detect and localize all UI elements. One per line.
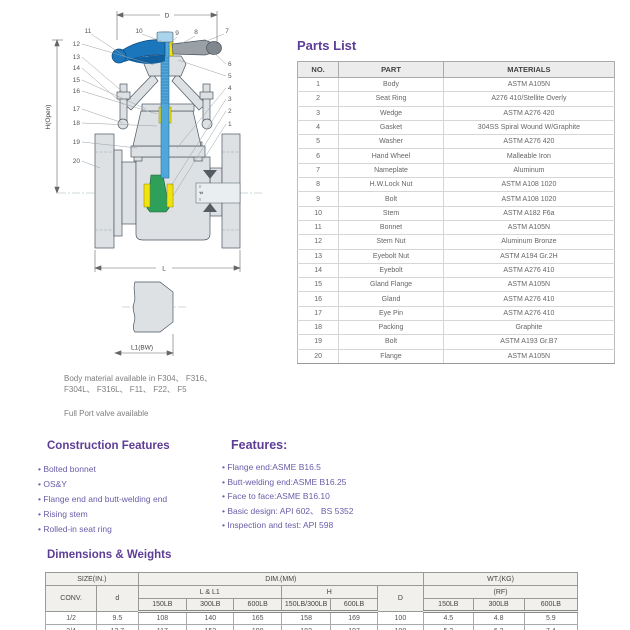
- col-header-no: NO.: [298, 62, 339, 78]
- dims-data-row: 3/4 12.7 117 152 190 183 197 100 5.3 6.3…: [46, 625, 578, 630]
- part-name-cell: Eye Pin: [339, 306, 444, 320]
- parts-list-section: Parts List NO. PART MATERIALS 1 Body AST…: [297, 38, 615, 364]
- part-name-cell: Packing: [339, 321, 444, 335]
- feature-item: Rising stem: [38, 507, 170, 522]
- callout: 1: [228, 121, 232, 128]
- header-dim: DIM.(MM): [138, 573, 423, 586]
- part-material-cell: ASTM A108 1020: [443, 178, 614, 192]
- feature-item: Bolted bonnet: [38, 462, 170, 477]
- sub-header: 600LB: [331, 599, 377, 612]
- feature-item: Basic design: API 602、 BS 5352: [222, 504, 354, 519]
- size-cell: 1/2: [46, 612, 97, 625]
- feature-item: Flange end:ASME B16.5: [222, 460, 354, 475]
- parts-table-row: 15 Gland Flange ASTM A105N: [298, 278, 615, 292]
- valve-cutaway-diagram: 11 10 9 8 7 12 13 14 15 16 17 18 19 20 6…: [0, 0, 300, 372]
- dim-h-label: H(Open): [45, 105, 52, 130]
- part-material-cell: ASTM A193 Gr.B7: [443, 335, 614, 349]
- part-material-cell: 304SS Spiral Wound W/Graphite: [443, 120, 614, 134]
- l600-cell: 165: [234, 612, 281, 625]
- part-name-cell: Nameplate: [339, 163, 444, 177]
- part-no-cell: 11: [298, 220, 339, 234]
- parts-table-row: 11 Bonnet ASTM A105N: [298, 220, 615, 234]
- diagram-notes: Body material available in F304、 F316、 F…: [64, 373, 296, 419]
- parts-table-row: 4 Gasket 304SS Spiral Wound W/Graphite: [298, 120, 615, 134]
- part-material-cell: ASTM A276 410: [443, 306, 614, 320]
- callout: 16: [73, 88, 81, 95]
- callout: 7: [225, 28, 229, 35]
- features-list: Flange end:ASME B16.5Butt-welding end:AS…: [222, 460, 354, 533]
- part-no-cell: 12: [298, 235, 339, 249]
- part-name-cell: Bonnet: [339, 220, 444, 234]
- feature-item: Inspection and test: API 598: [222, 518, 354, 533]
- parts-table-row: 5 Washer ASTM A276 420: [298, 135, 615, 149]
- D-cell: 100: [377, 625, 423, 630]
- part-name-cell: Gland Flange: [339, 278, 444, 292]
- parts-table-row: 7 Nameplate Aluminum: [298, 163, 615, 177]
- parts-table-row: 19 Bolt ASTM A193 Gr.B7: [298, 335, 615, 349]
- callout: 12: [73, 41, 81, 48]
- parts-table-row: 13 Eyebolt Nut ASTM A194 Gr.2H: [298, 249, 615, 263]
- part-name-cell: Eyebolt: [339, 263, 444, 277]
- sub-header: 600LB: [524, 599, 577, 612]
- parts-table-row: 14 Eyebolt ASTM A276 410: [298, 263, 615, 277]
- parts-list-title: Parts List: [297, 38, 615, 53]
- sub-header: 300LB: [187, 599, 234, 612]
- callout: 5: [228, 73, 232, 80]
- h150-300-cell: 183: [281, 625, 331, 630]
- sub-header: 150LB: [138, 599, 186, 612]
- part-no-cell: 5: [298, 135, 339, 149]
- feature-item: Rolled-in seat ring: [38, 522, 170, 537]
- parts-table-row: 10 Stem ASTM A182 F6a: [298, 206, 615, 220]
- feature-item: OS&Y: [38, 477, 170, 492]
- parts-table-row: 20 Flange ASTM A105N: [298, 349, 615, 363]
- parts-table-row: 18 Packing Graphite: [298, 321, 615, 335]
- header-rf: (RF): [424, 586, 578, 599]
- sub-header: 300LB: [473, 599, 524, 612]
- part-material-cell: ASTM A105N: [443, 278, 614, 292]
- part-no-cell: 14: [298, 263, 339, 277]
- callout: 10: [135, 28, 143, 35]
- feature-item: Flange end and butt-welding end: [38, 492, 170, 507]
- header-conv: CONV.: [46, 586, 97, 612]
- size-cell: 3/4: [46, 625, 97, 630]
- part-material-cell: Aluminum Bronze: [443, 235, 614, 249]
- l600-cell: 190: [234, 625, 281, 630]
- part-material-cell: ASTM A276 420: [443, 135, 614, 149]
- part-no-cell: 9: [298, 192, 339, 206]
- callout: 2: [228, 108, 232, 115]
- col-header-materials: MATERIALS: [443, 62, 614, 78]
- part-no-cell: 17: [298, 306, 339, 320]
- callout: 11: [85, 28, 92, 35]
- part-no-cell: 15: [298, 278, 339, 292]
- dim-l-label: L: [162, 266, 166, 273]
- dimensions-title: Dimensions & Weights: [47, 549, 171, 561]
- wt600-cell: 5.9: [524, 612, 577, 625]
- header-wt: WT.(KG): [424, 573, 578, 586]
- part-material-cell: ASTM A276 410: [443, 263, 614, 277]
- part-no-cell: 18: [298, 321, 339, 335]
- parts-table-row: 16 Gland ASTM A276 410: [298, 292, 615, 306]
- part-name-cell: Eyebolt Nut: [339, 249, 444, 263]
- part-name-cell: Gland: [339, 292, 444, 306]
- body-material-note: Body material available in F304、 F316、 F…: [64, 373, 296, 395]
- callout: 6: [228, 61, 232, 68]
- part-no-cell: 16: [298, 292, 339, 306]
- dimensions-section: SIZE(IN.) DIM.(MM) WT.(KG) CONV. d L & L…: [45, 572, 578, 630]
- parts-header-row: NO. PART MATERIALS: [298, 62, 615, 78]
- feature-item: Face to face:ASME B16.10: [222, 489, 354, 504]
- butt-weld-end: [133, 282, 173, 332]
- wt150-cell: 5.3: [424, 625, 474, 630]
- part-no-cell: 1: [298, 78, 339, 92]
- part-name-cell: Bolt: [339, 335, 444, 349]
- features-title: Features:: [231, 438, 354, 452]
- parts-table-row: 8 H.W.Lock Nut ASTM A108 1020: [298, 178, 615, 192]
- callout: 19: [73, 139, 81, 146]
- part-no-cell: 8: [298, 178, 339, 192]
- part-name-cell: Stem Nut: [339, 235, 444, 249]
- part-material-cell: Graphite: [443, 321, 614, 335]
- dims-header-row-1: SIZE(IN.) DIM.(MM) WT.(KG): [46, 573, 578, 586]
- part-material-cell: ASTM A276 410: [443, 292, 614, 306]
- sub-header: 150LB: [424, 599, 474, 612]
- header-l-l1: L & L1: [138, 586, 281, 599]
- construction-features-title: Construction Features: [47, 440, 170, 452]
- l300-cell: 140: [187, 612, 234, 625]
- feature-item: Butt-welding end:ASME B16.25: [222, 475, 354, 490]
- callout: 20: [73, 158, 81, 165]
- l300-cell: 152: [187, 625, 234, 630]
- callout: 13: [73, 54, 81, 61]
- D-cell: 100: [377, 612, 423, 625]
- h600-cell: 169: [331, 612, 377, 625]
- col-header-part: PART: [339, 62, 444, 78]
- part-name-cell: Body: [339, 78, 444, 92]
- l150-cell: 108: [138, 612, 186, 625]
- parts-table-row: 9 Bolt ASTM A108 1020: [298, 192, 615, 206]
- parts-table-row: 6 Hand Wheel Malleable Iron: [298, 149, 615, 163]
- note-line: F304L、 F316L、 F11、 F22、 F5: [64, 385, 187, 394]
- d-cell: 12.7: [97, 625, 139, 630]
- part-name-cell: Gasket: [339, 120, 444, 134]
- part-no-cell: 20: [298, 349, 339, 363]
- part-material-cell: ASTM A108 1020: [443, 192, 614, 206]
- part-material-cell: ASTM A194 Gr.2H: [443, 249, 614, 263]
- callout: 8: [194, 29, 198, 36]
- wt150-cell: 4.5: [424, 612, 474, 625]
- part-material-cell: ASTM A105N: [443, 349, 614, 363]
- callout: 9: [175, 30, 179, 37]
- callout: 3: [228, 96, 232, 103]
- part-no-cell: 2: [298, 92, 339, 106]
- dim-bore-label: d: [199, 191, 205, 194]
- part-material-cell: A276 410/Stellite Overly: [443, 92, 614, 106]
- part-name-cell: Seat Ring: [339, 92, 444, 106]
- header-h: H: [281, 586, 377, 599]
- parts-table-row: 2 Seat Ring A276 410/Stellite Overly: [298, 92, 615, 106]
- wt300-cell: 4.8: [473, 612, 524, 625]
- d-cell: 9.5: [97, 612, 139, 625]
- callout: 18: [73, 120, 81, 127]
- part-name-cell: Wedge: [339, 106, 444, 120]
- dims-data-row: 1/2 9.5 108 140 165 158 169 100 4.5 4.8 …: [46, 612, 578, 625]
- part-name-cell: Stem: [339, 206, 444, 220]
- part-no-cell: 7: [298, 163, 339, 177]
- part-no-cell: 10: [298, 206, 339, 220]
- construction-features-list: Bolted bonnetOS&YFlange end and butt-wel…: [38, 462, 170, 537]
- parts-table-row: 3 Wedge ASTM A276 420: [298, 106, 615, 120]
- l150-cell: 117: [138, 625, 186, 630]
- part-name-cell: Washer: [339, 135, 444, 149]
- callout: 15: [73, 77, 81, 84]
- part-no-cell: 3: [298, 106, 339, 120]
- header-d-small: d: [97, 586, 139, 612]
- parts-table-row: 1 Body ASTM A105N: [298, 78, 615, 92]
- callout: 17: [73, 106, 81, 113]
- part-material-cell: Aluminum: [443, 163, 614, 177]
- callout: 4: [228, 85, 232, 92]
- part-material-cell: ASTM A105N: [443, 78, 614, 92]
- header-size: SIZE(IN.): [46, 573, 139, 586]
- sub-header: 150LB/300LB: [281, 599, 331, 612]
- part-no-cell: 13: [298, 249, 339, 263]
- h600-cell: 197: [331, 625, 377, 630]
- part-no-cell: 6: [298, 149, 339, 163]
- parts-table-row: 12 Stem Nut Aluminum Bronze: [298, 235, 615, 249]
- dimensions-table: SIZE(IN.) DIM.(MM) WT.(KG) CONV. d L & L…: [45, 572, 578, 630]
- dims-header-row-2: CONV. d L & L1 H D (RF): [46, 586, 578, 599]
- parts-table-row: 17 Eye Pin ASTM A276 410: [298, 306, 615, 320]
- h150-300-cell: 158: [281, 612, 331, 625]
- sub-header: 600LB: [234, 599, 281, 612]
- parts-list-table: NO. PART MATERIALS 1 Body ASTM A105N 2 S…: [297, 61, 615, 364]
- dim-l1-label: L1(BW): [131, 345, 153, 352]
- part-material-cell: ASTM A105N: [443, 220, 614, 234]
- callout: 14: [73, 65, 81, 72]
- part-no-cell: 4: [298, 120, 339, 134]
- part-name-cell: Flange: [339, 349, 444, 363]
- features-section: Features: Flange end:ASME B16.5Butt-weld…: [222, 438, 354, 533]
- wt300-cell: 6.3: [473, 625, 524, 630]
- wt600-cell: 7.4: [524, 625, 577, 630]
- construction-features-section: Construction Features Bolted bonnetOS&YF…: [38, 440, 170, 537]
- part-no-cell: 19: [298, 335, 339, 349]
- part-name-cell: H.W.Lock Nut: [339, 178, 444, 192]
- dim-d-label: D: [165, 13, 170, 20]
- part-material-cell: ASTM A182 F6a: [443, 206, 614, 220]
- part-material-cell: Malleable Iron: [443, 149, 614, 163]
- part-name-cell: Hand Wheel: [339, 149, 444, 163]
- part-name-cell: Bolt: [339, 192, 444, 206]
- header-d-big: D: [377, 586, 423, 612]
- full-port-note: Full Port valve available: [64, 408, 296, 419]
- part-material-cell: ASTM A276 420: [443, 106, 614, 120]
- note-line: Body material available in F304、 F316、: [64, 374, 212, 383]
